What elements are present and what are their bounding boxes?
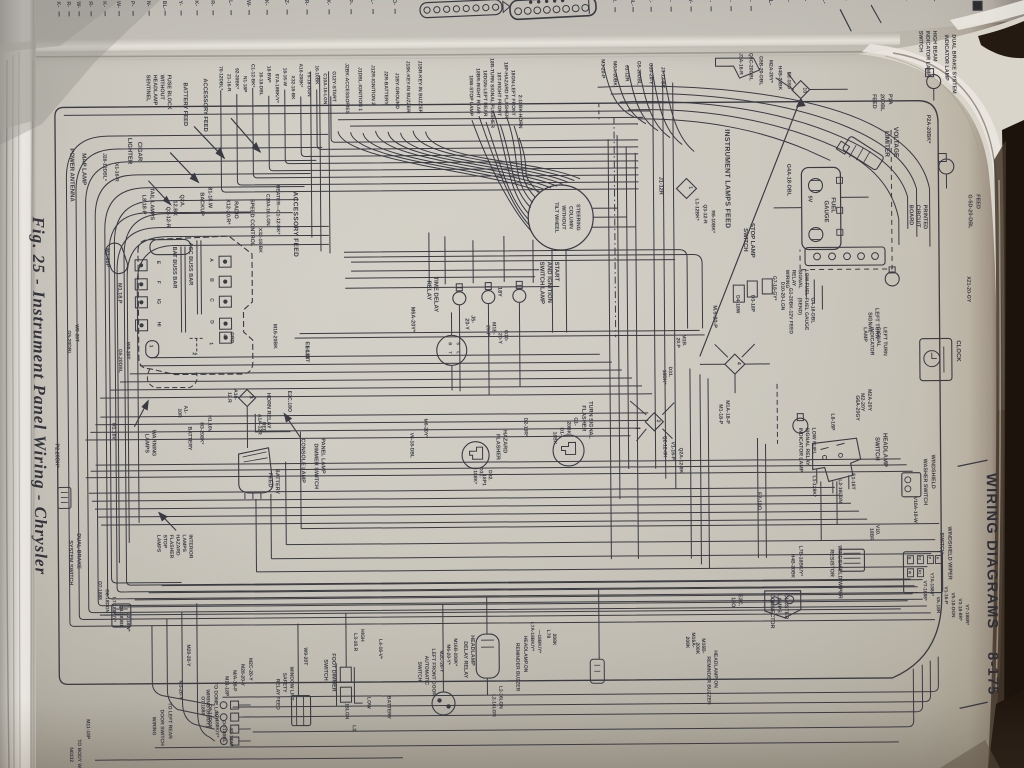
- svg-text:G-5D-20-DBL: G-5D-20-DBL: [967, 194, 973, 229]
- svg-text:C10A-16-LGN: C10A-16-LGN: [322, 73, 328, 105]
- svg-text:R-: R-: [727, 0, 733, 2]
- svg-text:TIME DELAY: TIME DELAY: [432, 276, 438, 312]
- svg-text:J1-12R: J1-12R: [624, 65, 630, 82]
- svg-text:D: D: [209, 320, 215, 324]
- svg-text:R-: R-: [209, 0, 215, 6]
- svg-text:J18K-KEY-IN BUZZER: J18K-KEY-IN BUZZER: [404, 61, 410, 113]
- svg-text:20BK: 20BK: [565, 421, 571, 434]
- svg-text:LAMPS: LAMPS: [143, 434, 149, 454]
- svg-text:18BR-RIGHT REAR: 18BR-RIGHT REAR: [475, 68, 481, 114]
- svg-text:SWITCH: SWITCH: [873, 437, 879, 461]
- svg-text:Y7A-1888*: Y7A-1888*: [929, 573, 935, 597]
- svg-text:X12-20.R*: X12-20.R*: [225, 199, 231, 225]
- svg-text:W-: W-: [931, 0, 937, 2]
- svg-text:F2: F2: [917, 556, 921, 560]
- svg-text:R6-10BK*: R6-10BK*: [710, 210, 716, 233]
- svg-text:16LGN: 16LGN: [344, 703, 350, 720]
- svg-text:K-: K-: [325, 0, 331, 5]
- svg-text:HEADLAMP-ON: HEADLAMP-ON: [712, 650, 718, 688]
- svg-text:O-: O-: [391, 0, 397, 5]
- svg-text:2: 2: [655, 420, 661, 423]
- svg-text:20DBL: 20DBL: [879, 94, 885, 112]
- svg-text:SWITCH: SWITCH: [742, 228, 748, 252]
- svg-text:P2A-20BK*: P2A-20BK*: [925, 115, 931, 145]
- svg-text:1: 1: [687, 186, 693, 189]
- svg-text:REMINDER BUZZER: REMINDER BUZZER: [514, 643, 520, 692]
- svg-text:M6-20Y*: M6-20Y*: [422, 419, 428, 439]
- svg-text:DOOR SWITCH: DOOR SWITCH: [159, 710, 165, 747]
- svg-text:70-12DBL*: 70-12DBL*: [218, 66, 224, 90]
- svg-text:Y-: Y-: [667, 0, 673, 2]
- svg-text:BL-: BL-: [821, 0, 827, 4]
- svg-text:L1-12BK*: L1-12BK*: [694, 198, 700, 220]
- svg-text:82-18W*: 82-18W*: [125, 613, 131, 632]
- svg-text:INDICATOR LAMP: INDICATOR LAMP: [924, 31, 930, 78]
- svg-text:FLASHER: FLASHER: [580, 405, 586, 431]
- svg-text:L7-188K/Y*: L7-188K/Y*: [111, 597, 117, 622]
- svg-text:LOW: LOW: [365, 697, 371, 709]
- svg-text:O8-18DGN: O8-18DGN: [104, 589, 110, 614]
- svg-text:G12Y-START: G12Y-START: [331, 71, 337, 102]
- svg-text:WIRING DIAGRAMS: WIRING DIAGRAMS: [983, 473, 1000, 630]
- svg-text:G5.20DBL: G5.20DBL: [117, 349, 123, 373]
- svg-text:L2.: L2.: [351, 725, 357, 733]
- svg-text:F: F: [155, 281, 161, 284]
- svg-text:18BK: 18BK: [551, 432, 557, 445]
- svg-text:DELAY RELAY: DELAY RELAY: [462, 641, 468, 678]
- svg-text:M.5-20-P: M.5-20-P: [711, 305, 717, 328]
- svg-text:P1A: P1A: [887, 94, 893, 105]
- svg-text:RESISTOR: RESISTOR: [828, 549, 834, 577]
- svg-text:HEADLAMP: HEADLAMP: [469, 635, 475, 666]
- svg-text:AND IGNITION: AND IGNITION: [546, 262, 552, 303]
- svg-text:W: W: [908, 571, 912, 575]
- svg-text:2-18BK-HORN: 2-18BK-HORN: [517, 95, 523, 129]
- svg-text:K-: K-: [101, 1, 107, 7]
- svg-text:COLUMN: COLUMN: [567, 206, 573, 229]
- svg-text:82-18W*: 82-18W*: [228, 728, 234, 747]
- svg-text:SIGNAL: SIGNAL: [866, 312, 872, 333]
- svg-text:W-: W-: [245, 0, 251, 7]
- svg-text:SIGNAL RELAY: SIGNAL RELAY: [804, 428, 810, 467]
- svg-text:Y-: Y-: [177, 0, 183, 5]
- svg-text:IG: IG: [155, 299, 161, 304]
- svg-text:TO LEFT REAR: TO LEFT REAR: [167, 703, 173, 740]
- svg-text:W9.20T: W9.20T: [125, 342, 131, 360]
- svg-text:Q4-180BL: Q4-180BL: [118, 605, 124, 628]
- svg-text:M6A-20Y*: M6A-20Y*: [409, 307, 415, 333]
- svg-text:M16-20BK: M16-20BK: [272, 324, 278, 349]
- svg-text:LAMPS: LAMPS: [155, 535, 161, 553]
- svg-text:AUTOMATIC: AUTOMATIC: [423, 656, 429, 686]
- svg-text:18W-STOP LAMP: 18W-STOP LAMP: [468, 75, 474, 117]
- svg-text:WIRING: WIRING: [784, 270, 790, 289]
- svg-text:P2.20BK*: P2.20BK*: [53, 443, 59, 468]
- svg-text:LEFT FRONT DOOR: LEFT FRONT DOOR: [430, 649, 436, 697]
- svg-text:FUSE BLOCK: FUSE BLOCK: [166, 75, 172, 110]
- svg-text:BL-: BL-: [629, 0, 635, 6]
- svg-text:G4-18-DBL: G4-18-DBL: [809, 298, 815, 324]
- svg-text:BATTERY FEED: BATTERY FEED: [182, 82, 188, 126]
- svg-text:BATTERY: BATTERY: [274, 469, 280, 495]
- svg-text:K-: K-: [193, 0, 199, 6]
- svg-text:20.P: 20.P: [675, 338, 681, 349]
- svg-text:L-: L-: [227, 0, 233, 5]
- svg-text:WIRING (BODY): WIRING (BODY): [204, 689, 210, 727]
- svg-text:18GN-LEFT FRONT: 18GN-LEFT FRONT: [510, 70, 516, 116]
- svg-text:B: B: [448, 342, 453, 345]
- svg-text:INDICATOR LAMP: INDICATOR LAMP: [797, 428, 803, 473]
- svg-text:ACCESSORY FEED: ACCESSORY FEED: [292, 192, 300, 258]
- svg-text:LOW FUEL: LOW FUEL: [803, 270, 809, 296]
- svg-text:HEADLAMP: HEADLAMP: [152, 75, 158, 106]
- svg-text:K-: K-: [263, 0, 269, 6]
- svg-text:SWITCH: SWITCH: [917, 31, 923, 52]
- svg-text:G5-20DBL: G5-20DBL: [635, 61, 641, 85]
- svg-text:E1.18T: E1.18T: [304, 345, 310, 363]
- svg-text:H1.16V: H1.16V: [206, 415, 212, 432]
- svg-text:M28-20-Y: M28-20-Y: [185, 644, 191, 667]
- svg-text:A: A: [208, 258, 214, 262]
- svg-text:(SEND): (SEND): [797, 298, 803, 316]
- svg-text:PRINTED: PRINTED: [922, 205, 928, 230]
- svg-text:WASHER SWITCH: WASHER SWITCH: [922, 459, 928, 506]
- svg-text:B: B: [907, 557, 911, 560]
- svg-text:W9-20T: W9-20T: [74, 324, 80, 342]
- svg-text:C1-12-BK*: C1-12-BK*: [250, 64, 256, 88]
- svg-text:18R-TURN SIGNAL FLASHER: 18R-TURN SIGNAL FLASHER: [488, 58, 495, 128]
- svg-text:SWITCH LAMP: SWITCH LAMP: [538, 262, 544, 304]
- svg-text:P-: P-: [129, 1, 135, 7]
- svg-text:V7-1888*: V7-1888*: [922, 581, 928, 601]
- svg-text:208K: 208K: [551, 634, 557, 646]
- svg-text:WIRING: WIRING: [151, 717, 157, 736]
- svg-text:H1.16V: H1.16V: [110, 423, 116, 440]
- svg-text:G10-20-Y: G10-20-Y: [648, 63, 654, 85]
- svg-text:HAZARD: HAZARD: [501, 430, 507, 453]
- svg-text:E2-18O: E2-18O: [786, 72, 792, 89]
- svg-text:M1-18-P: M1-18-P: [717, 404, 723, 424]
- svg-text:W-: W-: [687, 0, 693, 4]
- svg-text:L3-16.R: L3-16.R: [352, 633, 358, 651]
- svg-text:G5B-20-DBL: G5B-20-DBL: [757, 56, 763, 85]
- svg-text:SIGNAL: SIGNAL: [797, 270, 803, 289]
- svg-text:START: START: [553, 262, 559, 282]
- svg-text:P-: P-: [347, 0, 353, 5]
- svg-text:L8-18P: L8-18P: [829, 413, 835, 431]
- svg-text:10: 10: [801, 87, 807, 93]
- svg-text:SYSTEM SWITCH: SYSTEM SWITCH: [67, 540, 73, 585]
- svg-text:FEED: FEED: [975, 194, 981, 209]
- svg-text:2: 2: [191, 352, 197, 355]
- svg-text:FUEL: FUEL: [830, 197, 836, 213]
- svg-text:HAZARD: HAZARD: [174, 535, 180, 557]
- svg-text:BACKUP: BACKUP: [199, 192, 205, 216]
- svg-text:A16-208K*: A16-208K*: [298, 64, 304, 88]
- svg-text:W-: W-: [75, 1, 81, 8]
- svg-text:C: C: [208, 298, 214, 302]
- svg-text:18T-RIGHT FRONT: 18T-RIGHT FRONT: [496, 72, 502, 116]
- svg-text:E2C.: E2C.: [737, 594, 743, 607]
- svg-text:WINDSHIELD WIPER: WINDSHIELD WIPER: [946, 526, 952, 579]
- svg-text:V3-18-8R*: V3-18-8R*: [957, 598, 963, 621]
- svg-text:BATTERY: BATTERY: [186, 426, 192, 451]
- svg-text:TAIL LAMPS: TAIL LAMPS: [148, 188, 154, 221]
- svg-text:GAUGE: GAUGE: [823, 200, 829, 222]
- svg-text:12.R: 12.R: [226, 392, 232, 403]
- svg-text:ACCESSORY FEED: ACCESSORY FEED: [202, 78, 208, 132]
- svg-text:208K: 208K: [684, 637, 690, 649]
- svg-text:Q3-12-R: Q3-12-R: [702, 204, 708, 224]
- svg-text:A: A: [935, 557, 939, 560]
- svg-text:L2-16LGN: L2-16LGN: [490, 694, 496, 717]
- svg-text:V10A-18-W: V10A-18-W: [912, 497, 918, 523]
- svg-text:RELAY: RELAY: [425, 281, 431, 301]
- svg-text:J12R-IGNITION 2: J12R-IGNITION 2: [370, 65, 376, 105]
- svg-text:J28-12DBL*: J28-12DBL*: [101, 153, 107, 181]
- svg-text:J1DBL-IGNITION 1: J1DBL-IGNITION 1: [357, 67, 363, 111]
- svg-text:1: 1: [148, 345, 154, 348]
- svg-text:FUEL GAUGE: FUEL GAUGE: [803, 298, 809, 331]
- svg-text:16-10BK: 16-10BK: [314, 65, 320, 85]
- svg-text:18BR: 18BR: [868, 528, 874, 541]
- svg-text:MAP LAMP: MAP LAMP: [80, 153, 86, 185]
- svg-text:18DGN-LEFT REAR: 18DGN-LEFT REAR: [482, 70, 488, 117]
- svg-text:L7B-18BK/Y*: L7B-18BK/Y*: [797, 546, 803, 577]
- svg-text:WITHOUT: WITHOUT: [560, 205, 566, 230]
- svg-text:Q3-12-R: Q3-12-R: [165, 207, 171, 228]
- svg-text:20-Y: 20-Y: [464, 318, 470, 330]
- svg-text:12.BK: 12.BK: [172, 201, 178, 217]
- svg-text:HI: HI: [156, 322, 162, 328]
- svg-text:BATTERY: BATTERY: [385, 696, 391, 720]
- svg-text:L2-16LGN: L2-16LGN: [497, 686, 503, 709]
- svg-text:X21-20-GY: X21-20-GY: [965, 276, 971, 303]
- svg-text:DUAL BRAKE SYSTEM: DUAL BRAKE SYSTEM: [950, 34, 956, 94]
- svg-text:18Y: 18Y: [496, 287, 502, 297]
- svg-text:SWITCH: SWITCH: [416, 662, 422, 682]
- svg-text:M1A-18-P: M1A-18-P: [724, 400, 730, 424]
- svg-text:S: S: [456, 342, 461, 345]
- svg-text:M6-20-Y*: M6-20-Y*: [445, 644, 451, 664]
- svg-text:O4-180BL: O4-180BL: [221, 720, 227, 743]
- svg-text:M16B-208K*: M16B-208K*: [452, 638, 458, 666]
- svg-text:M2-20Y: M2-20Y: [859, 393, 865, 412]
- svg-text:07A-18BK/Y*: 07A-18BK/Y*: [274, 74, 280, 103]
- svg-text:J1BR-KEY-IN BUZZER: J1BR-KEY-IN BUZZER: [416, 61, 422, 114]
- svg-text:FLASHER: FLASHER: [168, 535, 174, 559]
- svg-text:G1-20BK-12V FEED: G1-20BK-12V FEED: [787, 288, 793, 335]
- svg-text:Y5-18-DGN: Y5-18-DGN: [306, 71, 312, 97]
- svg-text:4: 4: [735, 362, 741, 365]
- svg-text:M2A-20Y*: M2A-20Y*: [767, 60, 773, 83]
- svg-text:STEERING: STEERING: [575, 204, 581, 231]
- svg-text:Z-: Z-: [283, 0, 289, 5]
- svg-text:LIGHTER: LIGHTER: [126, 138, 132, 165]
- svg-text:ACC BUSS BAR: ACC BUSS BAR: [187, 242, 193, 285]
- svg-text:FOOT DIMMER: FOOT DIMMER: [330, 653, 336, 691]
- svg-text:J1-12R: J1-12R: [657, 177, 663, 195]
- svg-text:G1-: G1-: [572, 417, 578, 426]
- svg-text:16-18-DBL: 16-18-DBL: [258, 72, 264, 96]
- svg-text:J3-12-BK: J3-12-BK: [660, 67, 666, 89]
- svg-text:TO BODY WIRING: TO BODY WIRING: [76, 739, 82, 768]
- svg-text:CLUSTER: CLUSTER: [783, 594, 789, 620]
- svg-text:1: 1: [208, 342, 214, 345]
- svg-text:188K*: 188K*: [472, 470, 478, 484]
- svg-text:CONSOLE LAMP: CONSOLE LAMP: [299, 439, 305, 484]
- svg-text:RADIO: RADIO: [233, 201, 239, 219]
- svg-text:TURN SIGNAL: TURN SIGNAL: [587, 401, 593, 439]
- svg-text:O-: O-: [785, 0, 791, 2]
- svg-text:H4B-20BK: H4B-20BK: [789, 554, 795, 579]
- svg-text:M6A-20BK: M6A-20BK: [611, 61, 617, 86]
- svg-text:VA-18R: VA-18R: [935, 597, 941, 614]
- svg-text:18O: 18O: [730, 597, 736, 607]
- svg-text:Q2A-12-8K: Q2A-12-8K: [678, 448, 684, 474]
- svg-text:HIGH: HIGH: [359, 629, 365, 642]
- svg-text:M3-20-P: M3-20-P: [599, 59, 605, 79]
- svg-text:H4B-20BK: H4B-20BK: [777, 66, 783, 91]
- svg-text:8-175: 8-175: [984, 652, 1000, 696]
- svg-text:M2C-20-Y: M2C-20-Y: [247, 658, 253, 681]
- svg-text:RELAY FEED: RELAY FEED: [274, 679, 280, 711]
- svg-text:W-: W-: [115, 1, 121, 8]
- svg-text:L4-16-V*: L4-16-V*: [377, 639, 383, 659]
- svg-text:M/A-18-P: M/A-18-P: [231, 670, 237, 692]
- svg-text:HIGH BEAM: HIGH BEAM: [931, 31, 937, 62]
- svg-text:N0332: N0332: [68, 747, 74, 762]
- svg-text:M3-18P: M3-18P: [104, 248, 110, 268]
- svg-text:J2R-BATTERY: J2R-BATTERY: [383, 71, 389, 106]
- svg-text:Fig. 25 - Instrument Panel Wir: Fig. 25 - Instrument Panel Wiring - Chry…: [29, 216, 51, 576]
- svg-text:L1-128K*: L1-128K*: [811, 476, 817, 497]
- svg-text:Q2A.: Q2A.: [179, 194, 185, 207]
- svg-text:SAFETY: SAFETY: [281, 673, 287, 693]
- svg-text:LAMPS: LAMPS: [776, 594, 782, 613]
- svg-text:N-: N-: [145, 1, 151, 7]
- svg-text:W9-20T: W9-20T: [302, 648, 308, 666]
- svg-text:LAMPS: LAMPS: [181, 534, 187, 552]
- svg-text:D1-: D1-: [558, 427, 564, 435]
- svg-text:M11-18P: M11-18P: [223, 676, 229, 697]
- svg-text:R-: R-: [65, 1, 71, 7]
- svg-text:18BK*: 18BK*: [661, 370, 667, 385]
- svg-text:M28-20-Y: M28-20-Y: [239, 664, 245, 687]
- svg-text:M1.18.P: M1.18.P: [116, 283, 122, 304]
- svg-text:L7A-18BK/Y*: L7A-18BK/Y*: [529, 622, 535, 652]
- svg-text:LOW FUEL: LOW FUEL: [810, 428, 816, 456]
- svg-text:DIMMER SWITCH: DIMMER SWITCH: [312, 443, 318, 489]
- svg-text:STOP: STOP: [162, 535, 168, 549]
- svg-text:K-: K-: [55, 1, 61, 7]
- svg-text:V5-18-DGN: V5-18-DGN: [950, 592, 956, 618]
- svg-text:Q5C-20DBL: Q5C-20DBL: [747, 53, 753, 81]
- svg-text:WINDSHIELD: WINDSHIELD: [930, 455, 936, 489]
- svg-text:K-: K-: [747, 0, 753, 2]
- svg-text:BL-: BL-: [767, 0, 773, 5]
- svg-text:TILT WHEEL: TILT WHEEL: [553, 202, 559, 234]
- svg-text:VOLTAGE: VOLTAGE: [892, 127, 899, 158]
- svg-text:92-20BK*: 92-20BK*: [234, 68, 240, 89]
- svg-text:N1-18P: N1-18P: [242, 76, 248, 93]
- svg-text:Q2-12-8K: Q2-12-8K: [661, 436, 667, 458]
- svg-text:HEATER—C1-12-BK*: HEATER—C1-12-BK*: [274, 185, 280, 235]
- svg-text:B: B: [208, 278, 214, 282]
- svg-text:M2A-20Y: M2A-20Y: [866, 389, 872, 411]
- svg-text:H3-208K*: H3-208K*: [198, 422, 204, 444]
- svg-text:REMINDER BUZZER: REMINDER BUZZER: [705, 656, 711, 705]
- svg-text:WARNING: WARNING: [150, 430, 156, 457]
- svg-text:21-16-R: 21-16-R: [226, 74, 232, 92]
- svg-text:CONNECTOR: CONNECTOR: [769, 594, 775, 629]
- svg-text:HEADLAMP: HEADLAMP: [881, 433, 887, 467]
- svg-text:POWER ANTENNA: POWER ANTENNA: [68, 148, 74, 202]
- svg-text:18P-HAZARD FLASHER: 18P-HAZARD FLASHER: [503, 62, 509, 119]
- svg-text:4: 4: [222, 334, 228, 337]
- svg-text:L78: L78: [545, 630, 551, 639]
- svg-text:O7-1888: O7-1888: [97, 581, 103, 600]
- svg-text:J1BY-GROUND: J1BY-GROUND: [394, 73, 400, 110]
- svg-text:SWITCH: SWITCH: [938, 533, 944, 554]
- svg-text:BAT BUSS BAR: BAT BUSS BAR: [171, 247, 177, 289]
- svg-text:208K: 208K: [694, 642, 700, 654]
- svg-text:X32-18-BK: X32-18-BK: [290, 76, 296, 101]
- svg-text:L8.18-P: L8.18-P: [141, 195, 147, 215]
- svg-text:LEFT TURN: LEFT TURN: [873, 308, 879, 339]
- svg-text:18-BW*: 18-BW*: [266, 66, 272, 83]
- svg-text:GRD: GRD: [229, 332, 235, 344]
- svg-text:CLOCK: CLOCK: [955, 340, 961, 362]
- svg-text:N-: N-: [707, 0, 713, 2]
- svg-text:20-Y: 20-Y: [497, 333, 503, 345]
- svg-text:G7-18-GY*: G7-18-GY*: [771, 276, 777, 301]
- svg-text:SPEED CONTROL: SPEED CONTROL: [249, 199, 255, 247]
- svg-text:—18BK/Y*: —18BK/Y*: [536, 630, 542, 654]
- svg-text:C10A-16.LGN: C10A-16.LGN: [265, 194, 271, 226]
- svg-text:STOP LAMP: STOP LAMP: [749, 223, 755, 258]
- svg-text:M3-20-Y: M3-20-Y: [177, 680, 183, 700]
- svg-text:X1-16-R: X1-16-R: [113, 163, 119, 182]
- svg-text:WINDSHIELD WIPER: WINDSHIELD WIPER: [836, 545, 842, 598]
- svg-text:G4A-18-DBL: G4A-18-DBL: [785, 164, 791, 197]
- svg-text:V7-188R*: V7-188R*: [964, 604, 970, 625]
- svg-text:RELAY: RELAY: [790, 270, 796, 287]
- svg-text:CIRCUIT: CIRCUIT: [915, 205, 921, 228]
- svg-text:R1: R1: [918, 570, 922, 575]
- svg-text:PANEL LAMP: PANEL LAMP: [319, 438, 325, 474]
- svg-text:SWITCH: SWITCH: [322, 659, 328, 680]
- svg-text:FLASHER: FLASHER: [494, 434, 500, 460]
- svg-text:M2C-20-Y: M2C-20-Y: [438, 650, 444, 673]
- svg-text:R-: R-: [303, 0, 309, 6]
- svg-text:RED: RED: [260, 422, 266, 433]
- svg-text:DUAL BRAKE: DUAL BRAKE: [75, 533, 81, 569]
- svg-text:L-: L-: [369, 0, 375, 4]
- svg-text:LIMITER: LIMITER: [883, 131, 890, 157]
- svg-text:INTERIOR: INTERIOR: [187, 534, 193, 558]
- svg-text:LEFT TURN: LEFT TURN: [882, 327, 888, 356]
- svg-text:J3A-16-R: J3A-16-R: [737, 53, 743, 75]
- svg-text:WINDOW LIFT: WINDOW LIFT: [288, 667, 294, 701]
- svg-text:SENTINEL: SENTINEL: [145, 75, 151, 102]
- svg-text:BOARD: BOARD: [908, 205, 914, 226]
- svg-text:CIGAR: CIGAR: [136, 142, 142, 162]
- svg-text:3: 3: [248, 396, 254, 399]
- svg-text:81-18.W: 81-18.W: [206, 187, 212, 209]
- svg-text:20-P: 20-P: [485, 325, 491, 337]
- svg-text:18-16-W: 18-16-W: [282, 68, 288, 87]
